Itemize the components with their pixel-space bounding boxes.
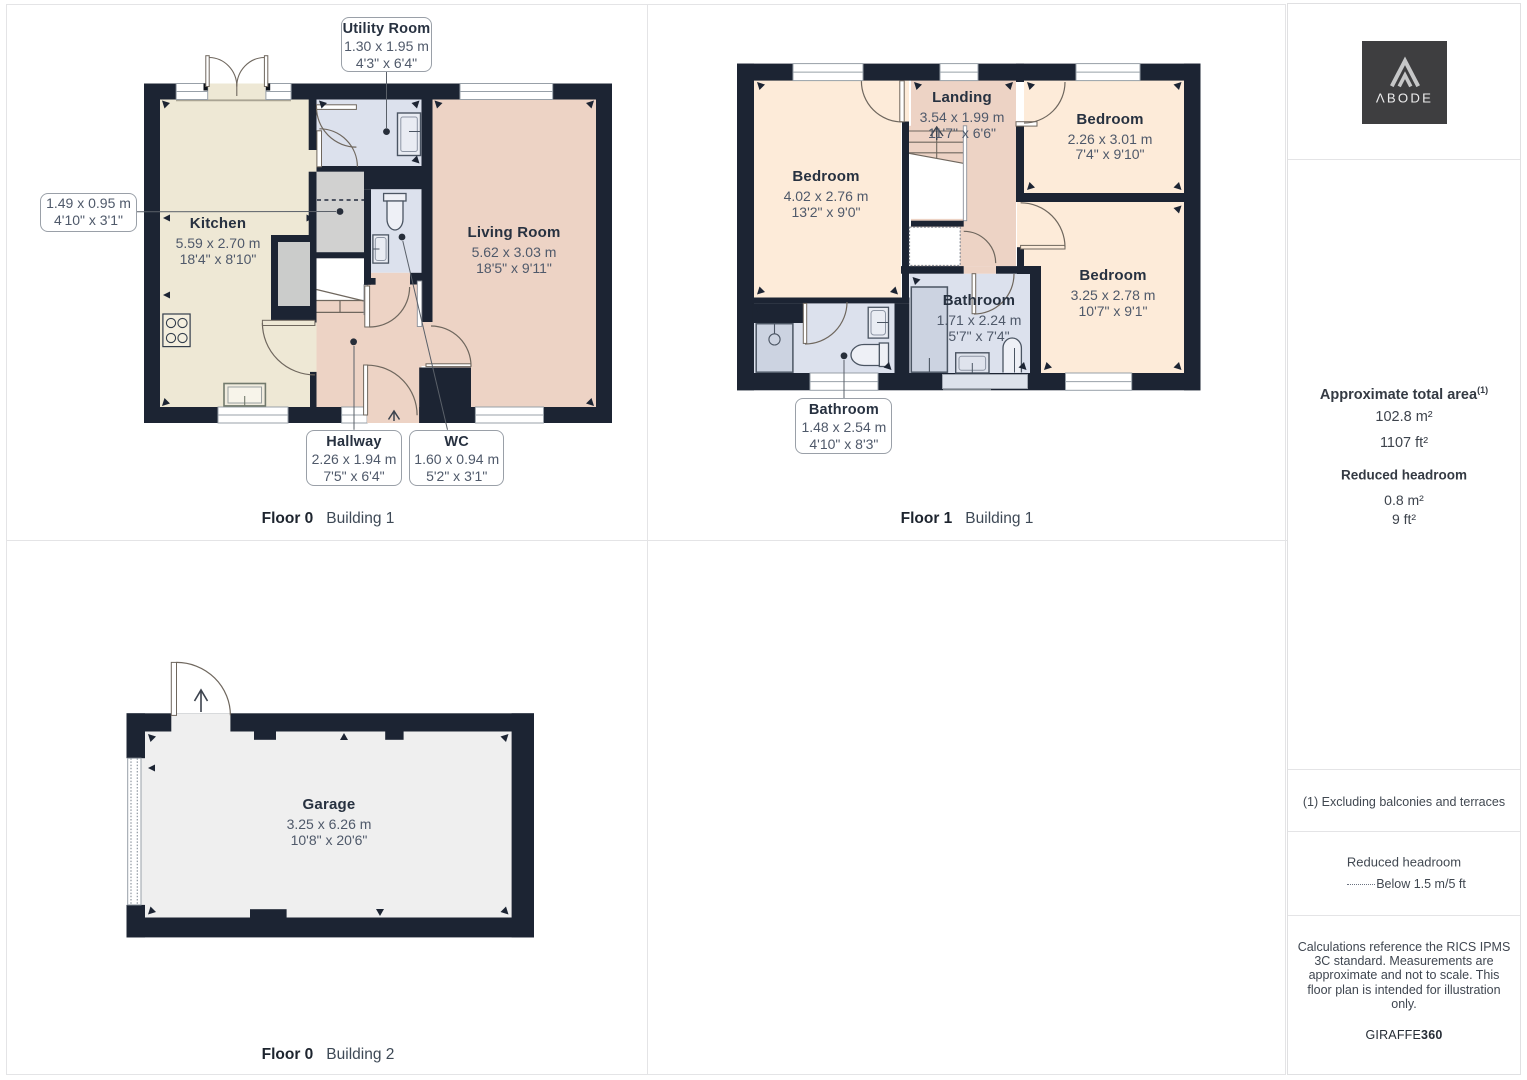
svg-text:ΛBODE: ΛBODE bbox=[1376, 91, 1433, 106]
